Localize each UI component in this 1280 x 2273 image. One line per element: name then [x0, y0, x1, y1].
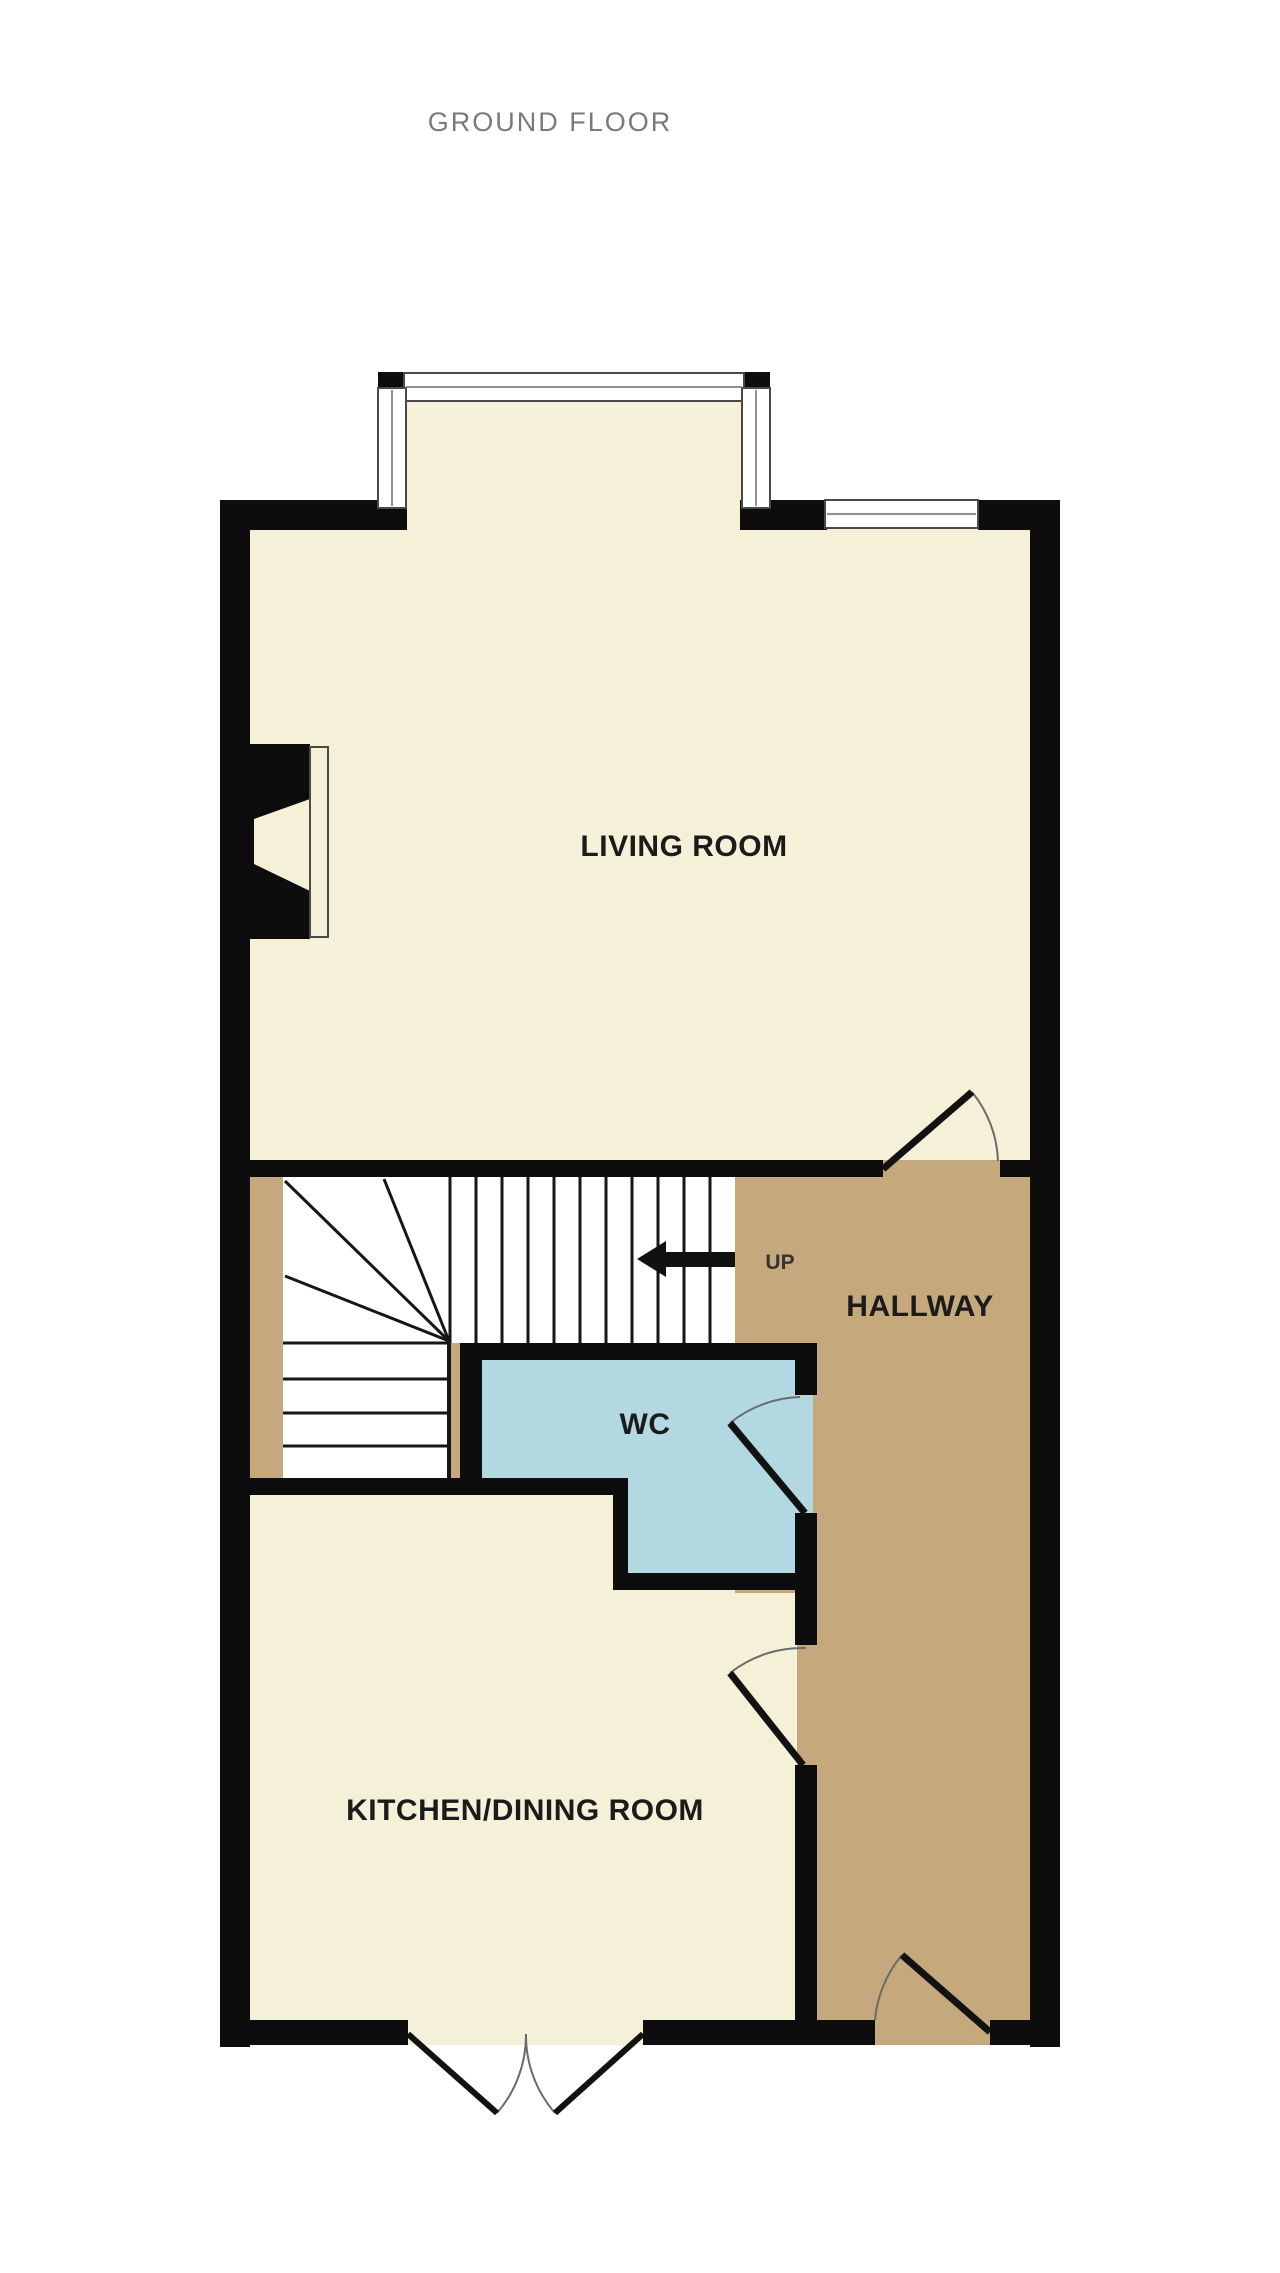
wall-kitchen-hall-upper	[795, 1343, 817, 1395]
wc-door-threshold	[795, 1395, 813, 1513]
kitchen-dining-label: KITCHEN/DINING ROOM	[346, 1794, 704, 1827]
wall-right	[1030, 500, 1060, 2047]
wall-living-hall-right	[1000, 1160, 1060, 1177]
french-door-left-leaf	[408, 2034, 497, 2113]
floor-plan: GROUND FLOOR LIVING ROOM HALLWAY WC KITC…	[0, 0, 1280, 2273]
wall-bottom-left	[220, 2020, 408, 2045]
wall-bottom-mid	[643, 2020, 875, 2045]
wall-wc-south	[613, 1573, 817, 1590]
bay-corner-post-right	[742, 372, 770, 388]
wall-kitchen-hall-lower	[795, 1765, 817, 2020]
hallway-strip-left-of-stairs	[250, 1177, 283, 1478]
french-door-right-leaf	[555, 2034, 643, 2113]
wall-wc-top	[460, 1343, 817, 1360]
wc-label: WC	[620, 1408, 671, 1441]
hallway-label: HALLWAY	[846, 1290, 993, 1323]
wall-front-right	[978, 500, 1060, 530]
hallway-main-lower	[797, 1593, 1030, 2045]
page-title: GROUND FLOOR	[428, 107, 673, 137]
wall-kitchen-hall-mid	[795, 1513, 817, 1645]
bay-window-floor	[406, 398, 744, 538]
wall-bottom-right	[990, 2020, 1060, 2045]
stairs-up-label: UP	[765, 1251, 794, 1274]
living-door-threshold	[883, 1160, 1000, 1177]
bay-corner-post-left	[378, 372, 406, 388]
wall-wc-west	[460, 1343, 482, 1495]
wall-left	[220, 500, 250, 2047]
stairs-lower-run	[283, 1343, 447, 1478]
stair-edge-line	[447, 1343, 451, 1478]
fireplace-hearth	[310, 747, 328, 937]
floorplan-page: GROUND FLOOR LIVING ROOM HALLWAY WC KITC…	[0, 0, 1280, 2273]
wall-living-hall-left	[220, 1160, 883, 1177]
french-door-left-arc	[497, 2034, 526, 2113]
living-room-label: LIVING ROOM	[580, 830, 787, 863]
wall-stairs-bottom	[250, 1478, 628, 1495]
french-door-right-arc	[526, 2034, 555, 2113]
